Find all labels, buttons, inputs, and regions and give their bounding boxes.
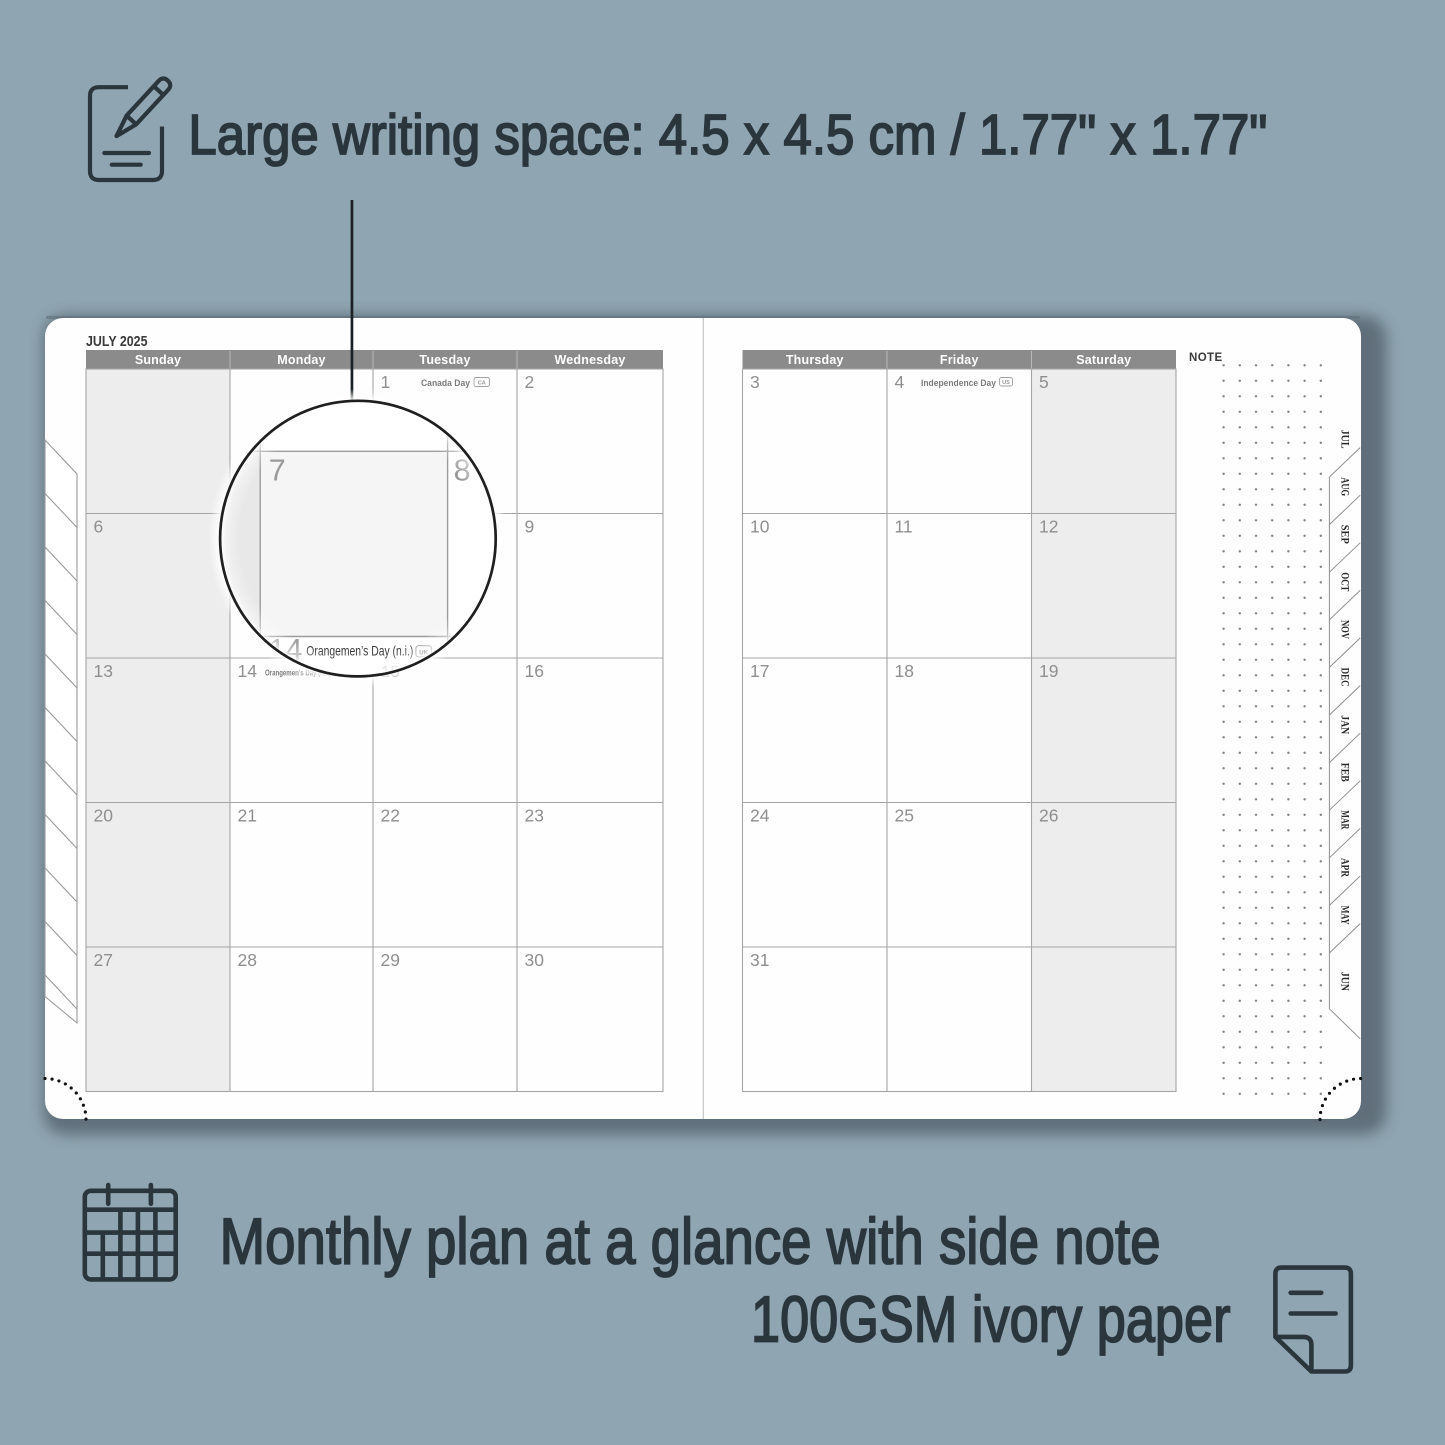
svg-text:Wednesday: Wednesday [554,353,625,367]
svg-text:JUL: JUL [1339,430,1351,449]
svg-text:CA: CA [478,380,486,386]
svg-text:5: 5 [1039,372,1049,392]
svg-text:10: 10 [750,517,770,537]
svg-text:Thursday: Thursday [786,353,844,367]
svg-text:24: 24 [750,806,770,826]
svg-text:FEB: FEB [1339,763,1351,782]
svg-text:22: 22 [381,806,400,826]
svg-text:29: 29 [381,950,400,970]
svg-text:MAY: MAY [1339,906,1351,925]
svg-text:11: 11 [895,517,913,537]
svg-text:1: 1 [381,372,391,392]
svg-text:100GSM ivory paper: 100GSM ivory paper [751,1283,1231,1355]
svg-text:Large writing space: 4.5 x 4.5: Large writing space: 4.5 x 4.5 cm / 1.77… [188,103,1267,167]
svg-text:NOTE: NOTE [1189,352,1223,364]
svg-text:16: 16 [525,661,544,681]
svg-text:AUG: AUG [1339,477,1351,496]
svg-text:Monthly plan at a glance with: Monthly plan at a glance with side note [220,1206,1161,1278]
svg-text:JUN: JUN [1339,972,1351,992]
svg-text:19: 19 [1039,661,1058,681]
svg-text:25: 25 [895,806,914,826]
svg-text:12: 12 [1039,517,1058,537]
svg-text:NOV: NOV [1339,620,1351,640]
svg-text:2: 2 [525,372,535,392]
svg-text:20: 20 [94,806,114,826]
svg-text:6: 6 [94,517,104,537]
svg-text:17: 17 [750,661,769,681]
svg-text:Friday: Friday [940,353,979,367]
svg-text:MAR: MAR [1339,810,1351,829]
svg-text:14: 14 [238,661,258,681]
svg-text:SEP: SEP [1339,525,1351,544]
svg-text:28: 28 [238,950,257,970]
svg-text:OCT: OCT [1339,572,1351,591]
svg-text:JULY 2025: JULY 2025 [86,333,148,350]
svg-text:Saturday: Saturday [1076,353,1131,367]
svg-text:9: 9 [525,517,535,537]
svg-text:4: 4 [895,372,905,392]
svg-text:JAN: JAN [1339,715,1351,735]
svg-text:Independence Day: Independence Day [921,378,997,389]
svg-text:21: 21 [238,806,257,826]
svg-text:23: 23 [525,806,544,826]
svg-text:Canada Day: Canada Day [421,378,471,389]
svg-text:18: 18 [895,661,914,681]
svg-text:26: 26 [1039,806,1058,826]
svg-text:Sunday: Sunday [135,353,181,367]
svg-text:27: 27 [94,950,113,970]
svg-text:3: 3 [750,372,760,392]
svg-text:Monday: Monday [277,353,325,367]
svg-text:13: 13 [94,661,113,681]
svg-text:Tuesday: Tuesday [419,353,470,367]
svg-text:DEC: DEC [1339,668,1351,687]
svg-text:30: 30 [525,950,545,970]
svg-text:APR: APR [1339,858,1351,878]
svg-text:31: 31 [750,950,769,970]
svg-text:US: US [1002,380,1010,386]
